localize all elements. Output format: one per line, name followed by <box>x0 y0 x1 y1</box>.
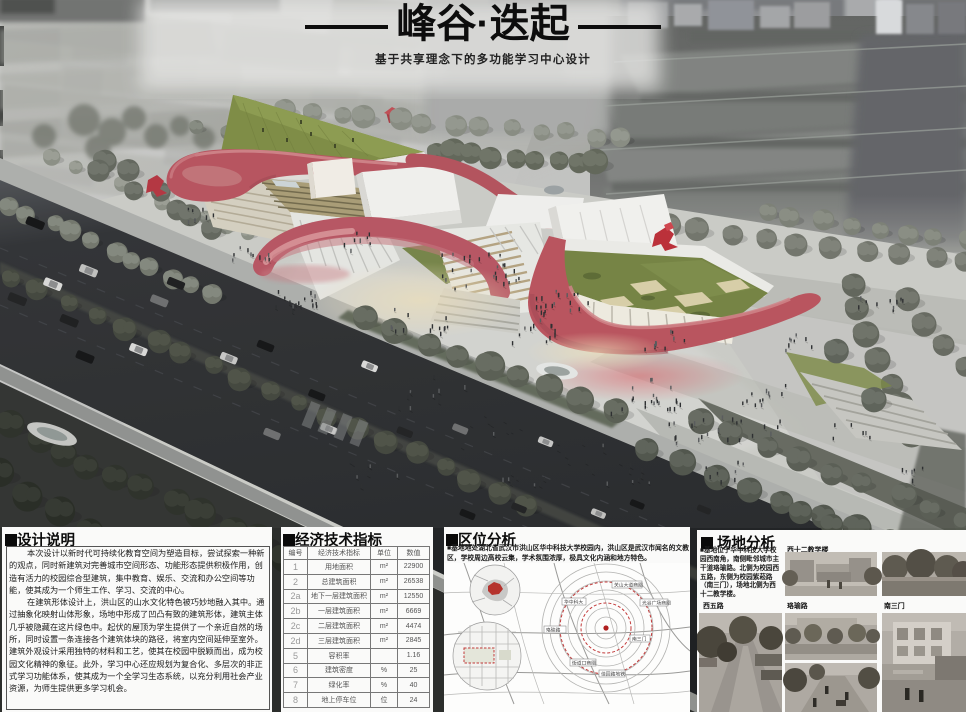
svg-text:光谷广场商圈: 光谷广场商圈 <box>642 600 671 607</box>
svg-text:关山大道商圈: 关山大道商圈 <box>614 582 643 589</box>
svg-text:佳园路地铁: 佳园路地铁 <box>601 671 625 678</box>
svg-text:华中科大: 华中科大 <box>564 599 583 606</box>
svg-text:南三门: 南三门 <box>632 636 647 643</box>
svg-text:珞瑜路: 珞瑜路 <box>546 627 561 634</box>
svg-text:街道口商圈: 街道口商圈 <box>572 660 596 667</box>
